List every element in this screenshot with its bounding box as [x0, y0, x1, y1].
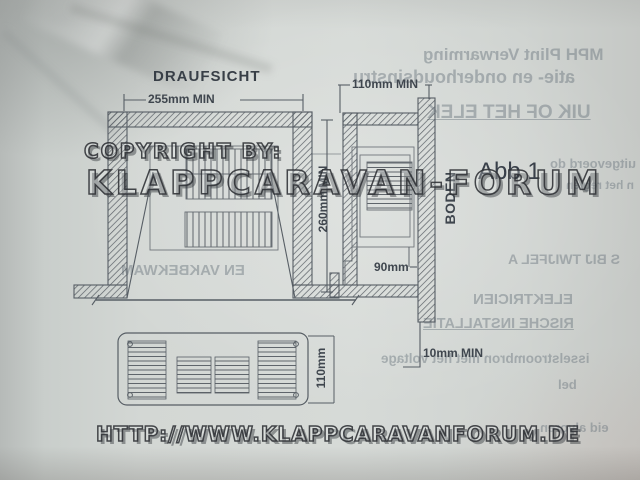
dim-255mm-label: 255mm MIN	[148, 93, 215, 105]
technical-drawing	[0, 0, 640, 480]
photographed-manual-page: MPH Plint Verwarming atie- en onderhouds…	[0, 0, 640, 480]
dim-110mm-top-label: 110mm MIN	[352, 78, 418, 90]
dim-110mm-grille-label: 110mm	[315, 338, 327, 398]
drawing-title: DRAUFSICHT	[153, 69, 261, 84]
dim-90mm-label: 90mm	[374, 261, 409, 273]
watermark-url: HTTP://WWW.KLAPPCARAVANFORUM.DE	[96, 424, 580, 444]
vent-grille-drawing	[118, 333, 334, 405]
dim-10mm-label: 10mm MIN	[423, 347, 483, 359]
watermark-copyright: COPYRIGHT BY:	[84, 141, 282, 161]
watermark-forum-name: KLAPPCARAVAN-FORUM	[86, 166, 603, 199]
